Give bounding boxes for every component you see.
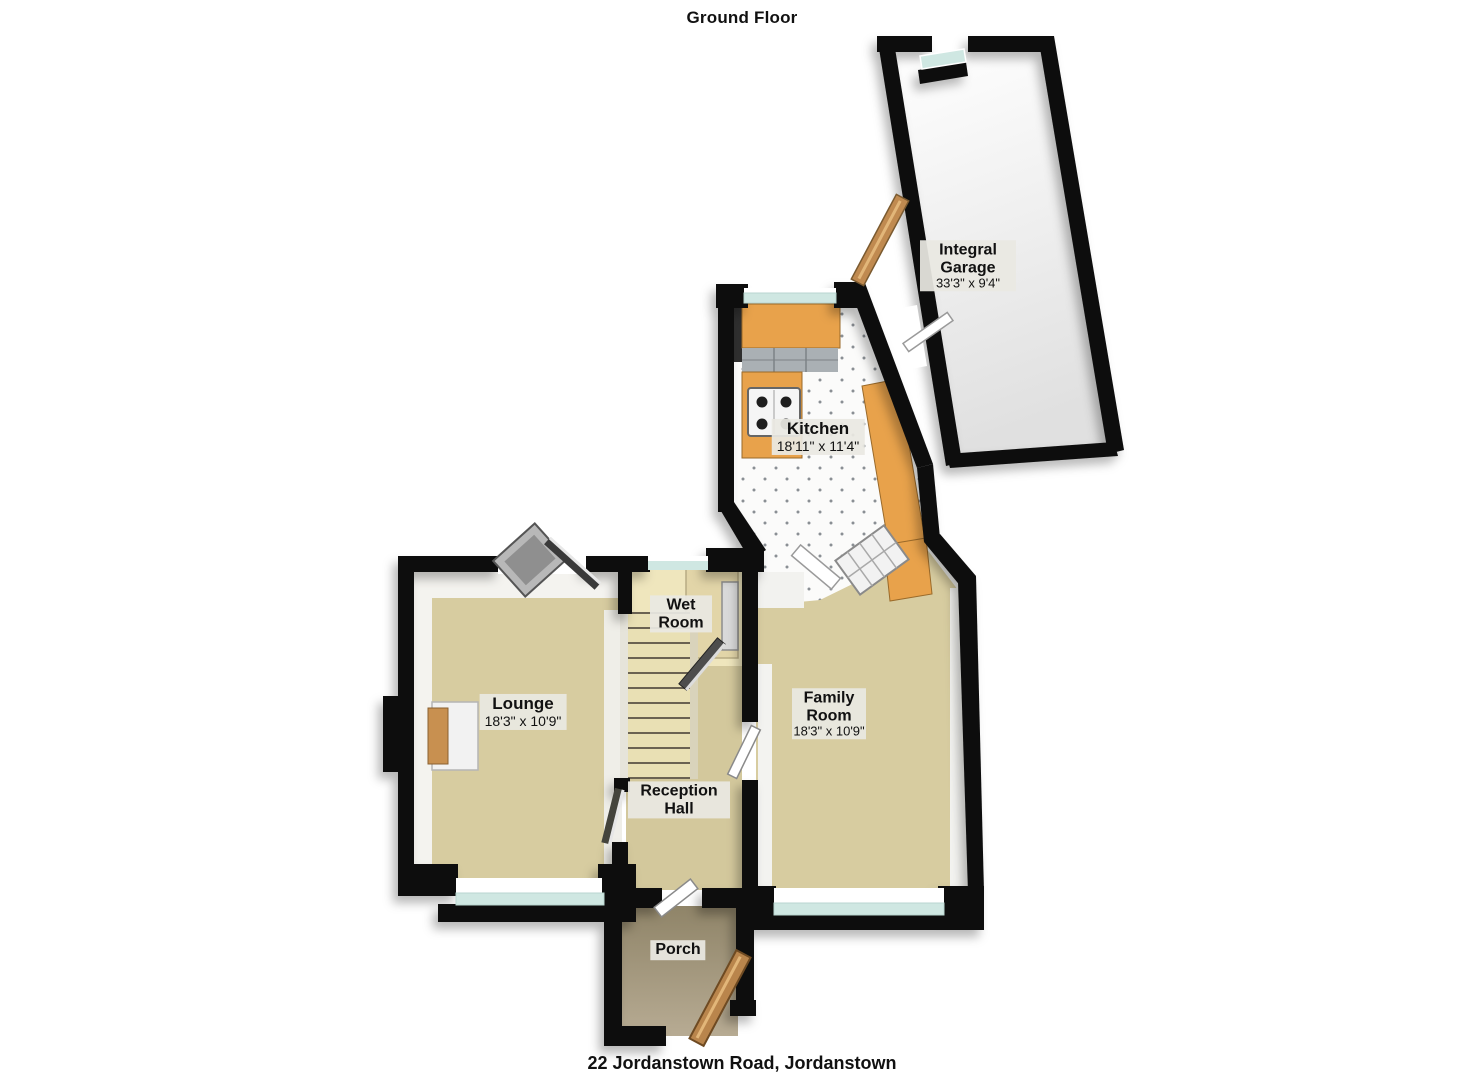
room-label-integral-garage: Integral Garage 33'3" x 9'4": [920, 240, 1016, 291]
floorplan-canvas: [0, 0, 1484, 1080]
room-label-kitchen: Kitchen 18'11" x 11'4": [772, 419, 865, 455]
room-name: Kitchen: [787, 420, 849, 439]
door: [851, 194, 908, 285]
staircase: [620, 612, 698, 779]
room-dims: 18'3" x 10'9": [793, 724, 864, 738]
fireplace: [428, 702, 478, 770]
floorplan-page: Ground Floor: [0, 0, 1484, 1080]
window: [744, 293, 836, 303]
room-name: Porch: [655, 941, 700, 959]
window: [648, 561, 708, 570]
room-label-family-room: Family Room 18'3" x 10'9": [792, 688, 866, 739]
room-dims: 18'3" x 10'9": [485, 714, 562, 729]
room-name: Lounge: [492, 695, 553, 714]
address-footer: 22 Jordanstown Road, Jordanstown: [0, 1053, 1484, 1074]
room-label-lounge: Lounge 18'3" x 10'9": [480, 694, 567, 730]
familyroom-floor: [756, 540, 976, 888]
window: [774, 903, 944, 915]
room-name: Reception Hall: [633, 782, 725, 817]
room-dims: 33'3" x 9'4": [936, 276, 1000, 290]
stair-stringer: [620, 612, 628, 779]
stair-stringer: [690, 612, 698, 779]
room-dims: 18'11" x 11'4": [777, 439, 860, 454]
window: [456, 893, 604, 905]
room-name: Wet Room: [655, 596, 707, 631]
room-label-porch: Porch: [650, 940, 705, 960]
room-name: Family Room: [797, 689, 861, 724]
room-name: Integral Garage: [925, 241, 1011, 276]
room-label-reception-hall: Reception Hall: [628, 781, 730, 818]
shower-unit: [722, 582, 738, 650]
room-label-wet-room: Wet Room: [650, 595, 712, 632]
